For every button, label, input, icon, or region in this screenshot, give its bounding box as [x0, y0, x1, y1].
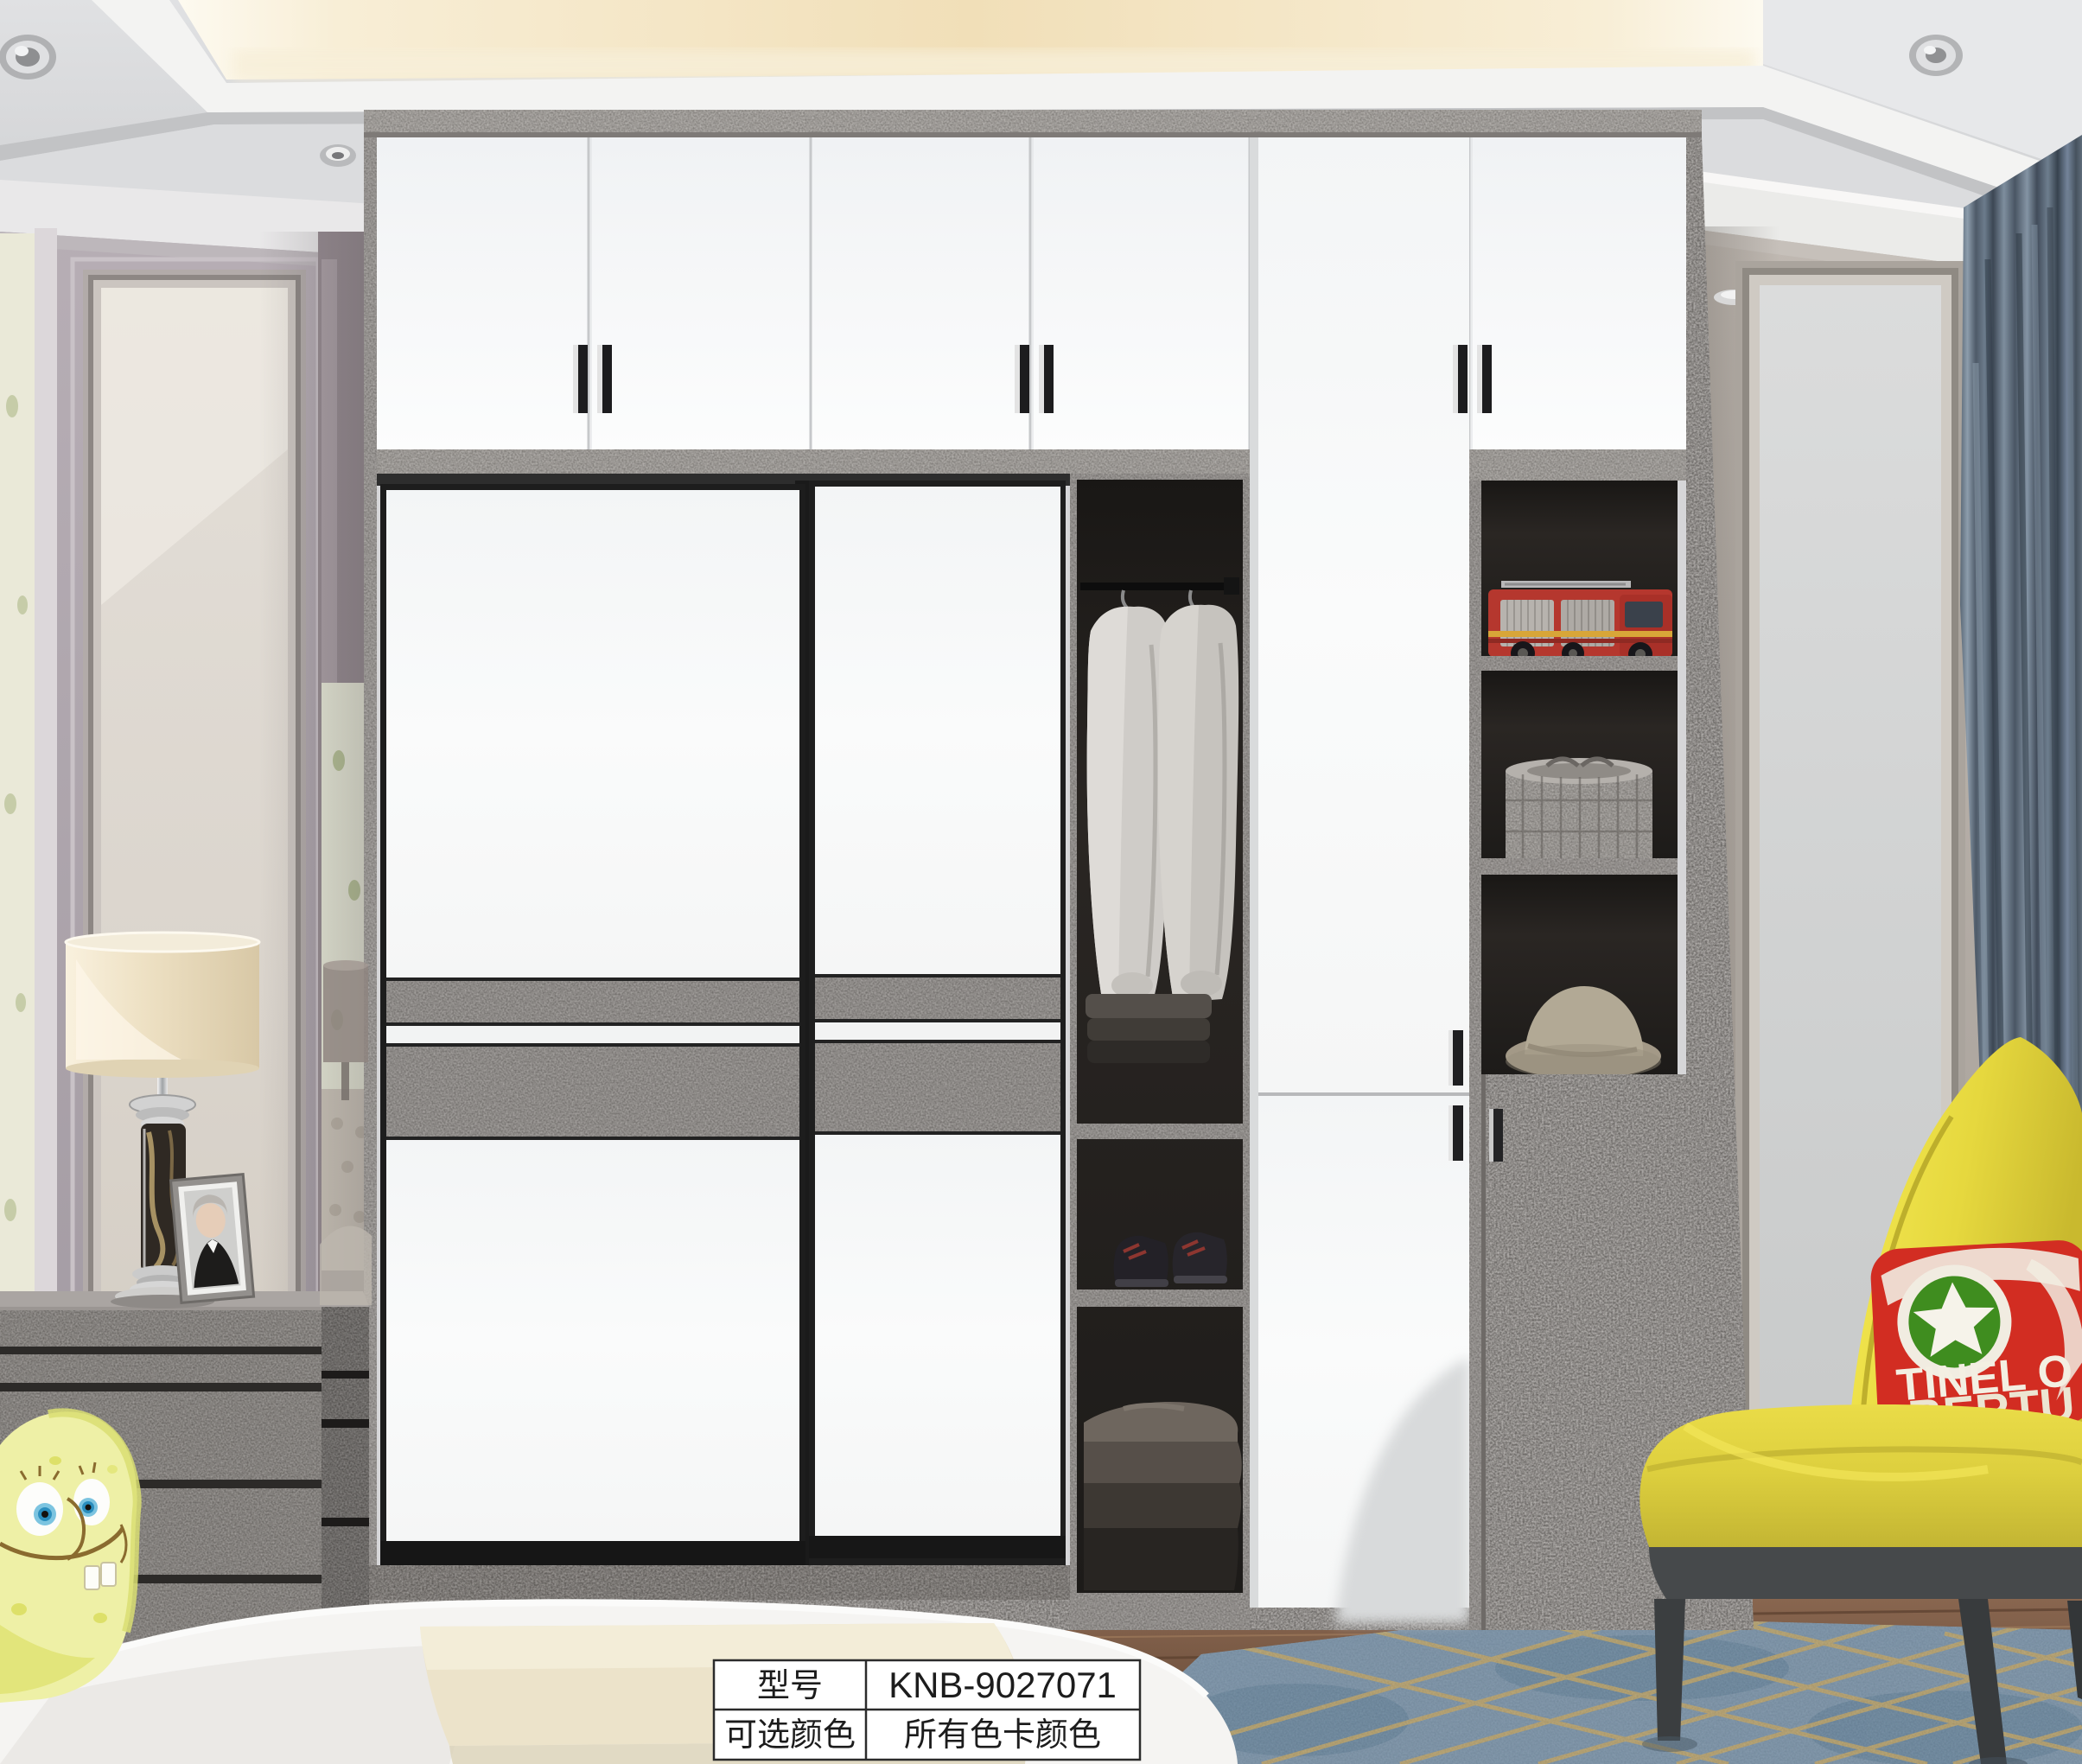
svg-text:可选颜色: 可选颜色	[724, 1717, 856, 1754]
svg-text:型号: 型号	[757, 1668, 823, 1704]
svg-text:所有色卡颜色: 所有色卡颜色	[904, 1717, 1101, 1754]
svg-text:KNB-9027071: KNB-9027071	[888, 1665, 1117, 1705]
